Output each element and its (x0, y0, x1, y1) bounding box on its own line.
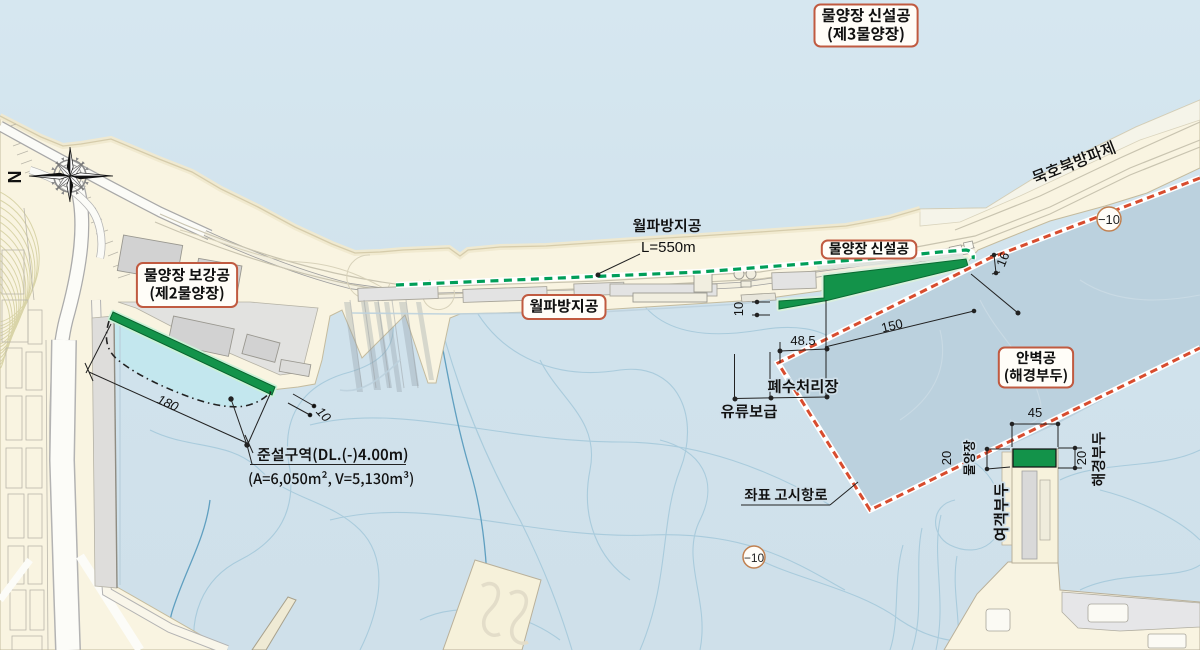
svg-text:20: 20 (1074, 451, 1089, 465)
svg-text:48.5: 48.5 (790, 333, 815, 348)
svg-text:L=550m: L=550m (641, 239, 696, 256)
svg-text:20: 20 (939, 451, 954, 465)
svg-text:−10: −10 (1098, 212, 1120, 227)
svg-text:45: 45 (1028, 405, 1042, 420)
svg-text:−10: −10 (744, 551, 765, 565)
svg-text:N: N (5, 171, 25, 184)
svg-text:10: 10 (731, 302, 746, 316)
